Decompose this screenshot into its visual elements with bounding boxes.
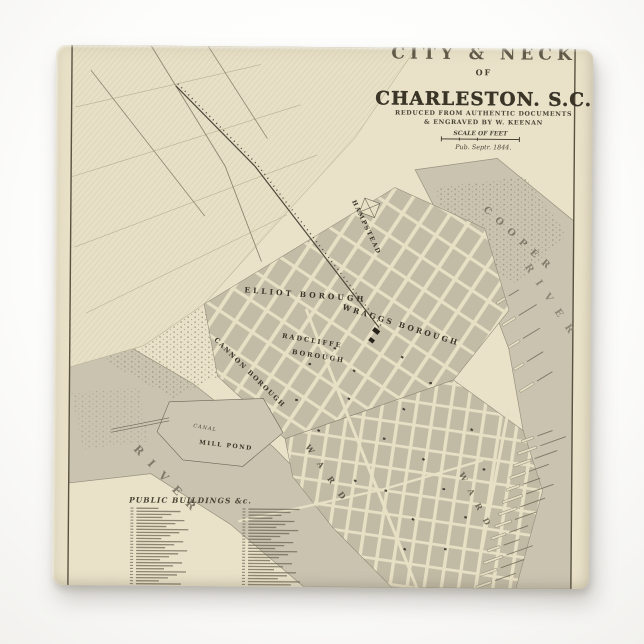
map-title-top: CITY & NECK xyxy=(391,45,576,65)
ceramic-tile: CITY & NECK OF CHARLESTON. S.C. REDUCED … xyxy=(52,45,593,589)
charleston-map-art: CITY & NECK OF CHARLESTON. S.C. REDUCED … xyxy=(52,45,593,589)
map-credit-line1: REDUCED FROM AUTHENTIC DOCUMENTS xyxy=(395,110,572,118)
map-credit-line2: & ENGRAVED BY W. KEENAN xyxy=(424,119,543,127)
map-title-of: OF xyxy=(476,67,493,77)
publication-date: Pub. Septr. 1844. xyxy=(454,143,511,151)
map-title-main: CHARLESTON. S.C. xyxy=(375,88,592,111)
scale-label: SCALE OF FEET xyxy=(453,130,508,137)
map-print: CITY & NECK OF CHARLESTON. S.C. REDUCED … xyxy=(52,45,593,589)
product-photo-canvas: { "product": { "kind_label": "ceramic ti… xyxy=(0,0,644,644)
legend-heading: PUBLIC BUILDINGS &c. xyxy=(128,495,252,505)
